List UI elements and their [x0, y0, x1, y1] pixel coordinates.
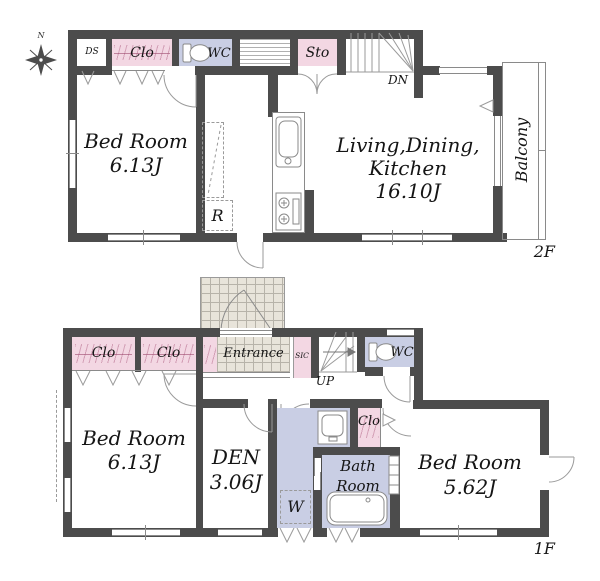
wall-segment [313, 447, 397, 455]
double-door-arcs [298, 74, 337, 96]
room-closet-2f-label: Clo [112, 41, 172, 65]
door-opening [237, 233, 263, 242]
door-arc [243, 404, 273, 434]
door-arc [382, 408, 413, 444]
compass-icon: N [18, 28, 64, 82]
room-wc-1f-label: WC [388, 341, 416, 363]
ldk-name-line1: Living,Dining, [318, 133, 498, 156]
wall-segment [337, 30, 346, 75]
door-arc [236, 242, 266, 270]
hall-closet-strip [203, 337, 217, 372]
stairs-dn-label: DN [378, 72, 418, 87]
balcony-label: Balcony [512, 90, 532, 210]
balcony-rail-line [538, 62, 539, 240]
floor-tag-1f: 1F [505, 540, 555, 558]
bathtub-icon [326, 491, 388, 526]
bathroom-name-line1: Bath [320, 456, 396, 476]
stove-icon [275, 192, 302, 231]
stairs-2f [346, 33, 416, 73]
bedroom-1f-east-name: Bed Room [394, 450, 546, 474]
wall-segment [310, 399, 382, 408]
window-tick [392, 230, 393, 245]
room-sic-label: SIC [291, 349, 313, 363]
window-tick [145, 525, 146, 540]
closet-front-line [380, 408, 381, 447]
wall-segment [493, 66, 502, 116]
entry-door-arc [216, 277, 276, 333]
wall-segment [357, 328, 365, 372]
window-tick [143, 230, 144, 245]
wall-segment [232, 30, 240, 75]
window-swing-marker [478, 98, 494, 114]
bedroom-2f-size: 6.13J [60, 153, 212, 177]
bedroom-1f-east-size: 5.62J [394, 475, 546, 499]
window-tick [422, 230, 423, 245]
stairs-1f [319, 332, 357, 372]
ldk-size: 16.10J [318, 179, 498, 202]
window [362, 234, 452, 241]
compass-north-label: N [37, 31, 46, 40]
threshold-line [220, 330, 272, 331]
entrance-step-line [203, 372, 290, 373]
room-closet-1f-a-label: Clo [72, 341, 135, 365]
room-storage-2f-label: Sto [298, 41, 337, 65]
floor-plan: N DS Clo WC Sto [0, 0, 600, 581]
kitchen-sink-icon [275, 116, 302, 168]
bifold-door-marks [80, 71, 170, 87]
washbasin-icon [317, 410, 348, 445]
floor-tag-2f: 2F [505, 243, 555, 261]
window [218, 529, 262, 536]
stairs-up-label: UP [305, 373, 345, 388]
entrance-label: Entrance [217, 344, 290, 362]
window [64, 478, 71, 512]
void-louver [240, 39, 290, 66]
room-ds-2f: DS [78, 44, 106, 60]
wall-segment [305, 190, 314, 233]
entrance-step-line [203, 377, 290, 378]
window [439, 67, 487, 74]
den-size: 3.06J [176, 470, 296, 494]
ldk-name-line2: Kitchen [318, 156, 498, 179]
window [387, 329, 414, 336]
door-arc [383, 376, 411, 403]
wall-segment [413, 400, 549, 409]
wall-segment [290, 30, 298, 75]
room-closet-1f-b-label: Clo [141, 341, 196, 365]
closet-hatch [204, 345, 217, 365]
door-opening [383, 367, 410, 376]
exterior-dashdot-line [56, 390, 57, 502]
window-tick [458, 525, 459, 540]
bedroom-2f-name: Bed Room [60, 129, 212, 153]
sliding-door-line [314, 458, 315, 476]
refrigerator-label: R [202, 202, 233, 230]
balcony-tick [538, 150, 546, 151]
den-name: DEN [176, 445, 296, 469]
window [112, 529, 180, 536]
wall-segment [196, 399, 248, 408]
wall-segment [195, 66, 298, 75]
room-wc-2f-label: WC [205, 42, 233, 64]
fold-door-marks [278, 528, 313, 546]
wall-segment [414, 328, 423, 403]
door-arc [549, 456, 575, 483]
wall-segment [268, 75, 278, 117]
threshold-line [220, 334, 272, 335]
fold-door-marks [327, 528, 360, 546]
window [108, 234, 180, 241]
washing-machine-label: W [280, 495, 311, 519]
door-arc [160, 372, 200, 412]
